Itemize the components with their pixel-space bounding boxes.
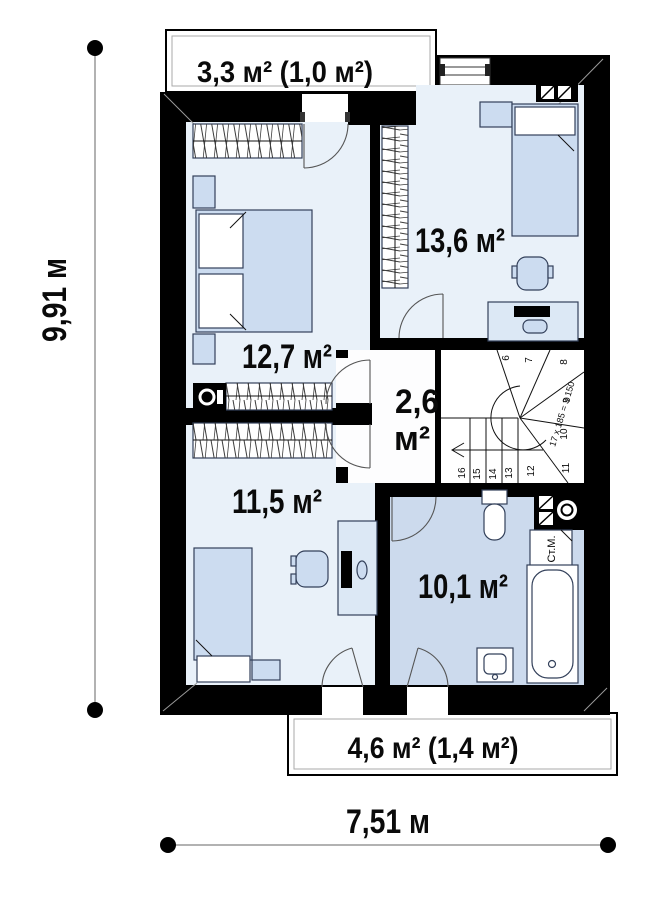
stair-step-number: 11 xyxy=(561,462,572,473)
wardrobe-icon xyxy=(193,124,302,158)
room-area-label-bedroom-upper-left: 12,7 м² xyxy=(242,338,332,376)
bathtub-icon xyxy=(527,565,578,683)
room-area-label-bedroom-lower-left: 11,5 м² xyxy=(232,483,322,521)
dimension-dot xyxy=(600,837,616,853)
chair-icon xyxy=(512,257,553,290)
stair-step-number: 8 xyxy=(559,359,570,365)
floor-plan-drawing: 3,3 м² (1,0 м²) 4,6 м² (1,4 м²) xyxy=(0,0,655,914)
room-area-label-bedroom-upper-right: 13,6 м² xyxy=(415,222,505,260)
floor-plan-page: 3,3 м² (1,0 м²) 4,6 м² (1,4 м²) xyxy=(0,0,655,914)
dimension-width-label: 7,51 м xyxy=(346,803,430,841)
washing-machine-icon: Ст.М. xyxy=(530,530,572,568)
pillow xyxy=(197,656,250,682)
stair-step-number: 7 xyxy=(524,357,535,363)
vent-grille-icon xyxy=(536,83,578,102)
dimension-width: 7,51 м xyxy=(160,803,616,853)
dimension-height-label: 9,91 м xyxy=(36,258,74,342)
stair-step-number: 12 xyxy=(526,465,537,477)
pillow xyxy=(515,107,575,135)
nightstand xyxy=(193,334,215,364)
room-area-label-bathroom: 10,1 м² xyxy=(418,568,508,606)
balcony-top-area-label: 3,3 м² (1,0 м²) xyxy=(197,56,373,89)
stair-step-number: 13 xyxy=(504,467,515,479)
desk-icon xyxy=(488,302,578,341)
wall-hall-pier xyxy=(336,403,372,425)
door-jamb xyxy=(345,112,350,122)
dimension-dot xyxy=(87,40,103,56)
chair-icon xyxy=(291,551,328,587)
media-unit-icon xyxy=(193,383,226,412)
toilet-icon xyxy=(482,490,507,540)
stair-step-number: 15 xyxy=(472,468,483,480)
stair-step-number: 14 xyxy=(488,468,499,480)
wall-hall-left xyxy=(336,467,348,483)
stair-step-number: 6 xyxy=(501,355,512,361)
wardrobe-icon xyxy=(193,423,332,458)
balcony-top: 3,3 м² (1,0 м²) xyxy=(166,30,436,92)
desk-icon xyxy=(338,521,377,615)
wall-stairs-top-left xyxy=(370,338,397,350)
balcony-bottom: 4,6 м² (1,4 м²) xyxy=(288,713,617,775)
dimension-dot xyxy=(87,702,103,718)
room-area-label-hall-line2: м² xyxy=(394,420,430,458)
door-jamb xyxy=(300,112,305,122)
door-opening-balcony-top xyxy=(302,94,348,122)
room-area-label-hall-line1: 2,6 xyxy=(395,383,439,421)
boiler-icon xyxy=(534,491,584,530)
window xyxy=(440,58,490,85)
balcony-bottom-area-label: 4,6 м² (1,4 м²) xyxy=(348,732,519,765)
sink-icon xyxy=(477,648,513,682)
wall-pier xyxy=(348,92,416,125)
door-opening-balcony-bottom-left xyxy=(322,687,363,715)
washing-machine-label: Ст.М. xyxy=(546,535,558,562)
nightstand xyxy=(193,176,215,208)
stair-step-number: 16 xyxy=(457,467,468,479)
nightstand xyxy=(480,102,512,127)
wall-hall-left xyxy=(336,350,348,358)
wardrobe-icon xyxy=(226,383,332,410)
partition-bedrooms xyxy=(370,92,380,338)
dimension-dot xyxy=(160,837,176,853)
nightstand xyxy=(252,660,280,680)
dimension-height: 9,91 м xyxy=(36,40,103,718)
door-opening-balcony-bottom-right xyxy=(407,687,448,715)
wardrobe-icon xyxy=(382,126,408,288)
